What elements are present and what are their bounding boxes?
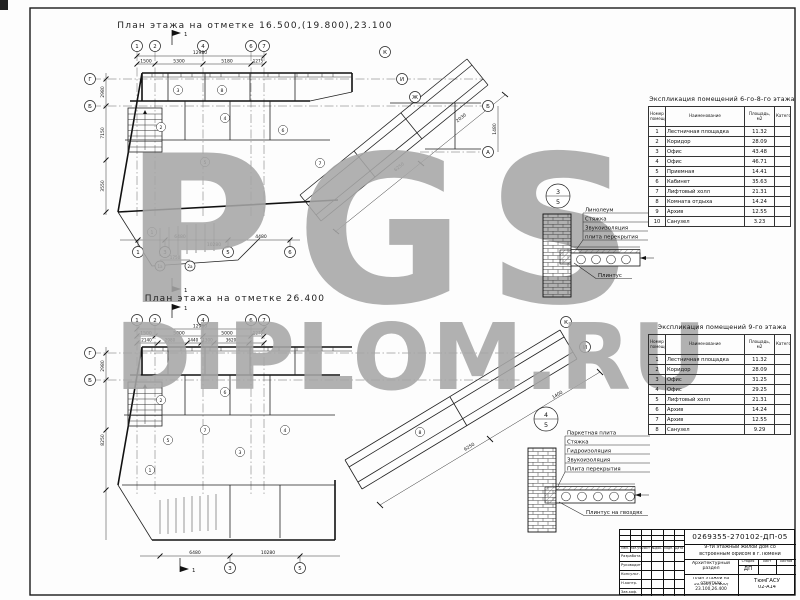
sign-header-cell: Лист (641, 547, 651, 551)
section-name: Архитектурный раздел (686, 561, 736, 572)
sign-header-cell: Кол.уч (630, 547, 641, 551)
project-name-line2: встроенным офисом в г.Тюмени (684, 552, 796, 558)
schedule-table: Номер помещения Наименование Площадь, м2… (648, 334, 791, 435)
layer-label: Гидроизоляция (567, 449, 611, 455)
sheet-label: Лист (758, 560, 776, 564)
table-row: 7Лифтовый холл21.31 (649, 187, 791, 197)
schedule-header-row: Номер помещения Наименование Площадь, м2… (649, 335, 791, 355)
col-header: Категория (775, 107, 791, 127)
table-row: 1Лестничная площадка11.32 (649, 355, 791, 365)
col-header: Наименование (666, 335, 745, 355)
col-header: Категория (775, 335, 791, 355)
table-row: 2Коридор28.09 (649, 137, 791, 147)
organization: ТюмГАСУ (738, 578, 796, 584)
sign-row-label: Руководит. (621, 563, 641, 567)
stage-label: Стадия (738, 560, 758, 564)
sign-row-label: Зав.каф. (621, 590, 641, 594)
layer-label: Звукоизоляция (567, 458, 610, 464)
detail-parquet: 4 5 Паркетная плита Стяжка Гидроизоляция… (528, 407, 650, 532)
project-name-line1: 9-ти этажный жилой дом со (684, 545, 796, 551)
sign-header-cell: Подп. (663, 547, 674, 551)
schedule-title: Экспликация помещений 9-го этажа (648, 324, 796, 331)
table-row: 8Комната отдыха14.24 (649, 197, 791, 207)
sign-row-label: Н.контр. (621, 581, 641, 585)
layer-label: Паркетная плита (567, 431, 616, 437)
table-row: 4Офис46.71 (649, 157, 791, 167)
detail-sheet: 5 (556, 198, 560, 206)
table-row: 3Офис43.48 (649, 147, 791, 157)
layer-label: плита перекрытия (585, 235, 638, 241)
detail-floor: 3 5 Линолеум Стяжка Звукоизоляция плита … (543, 184, 654, 297)
callout-label: Плинтус (598, 273, 622, 279)
sign-header-cell: Изм. (620, 547, 630, 551)
bottom-plan-title: План этажа на отметке 26.400 (115, 294, 355, 304)
callout-label: Плинтус на гвоздях (586, 510, 643, 516)
detail-sheet: 5 (544, 421, 548, 429)
layer-label: Плита перекрытия (567, 467, 621, 473)
schedule-title: Экспликация помещений 6-го-8-го этажа (648, 96, 796, 103)
sheets-label: Листов (776, 560, 796, 564)
top-plan-title: План этажа на отметке 16.500,(19.800),23… (115, 21, 395, 31)
table-row: 4Офис29.25 (649, 385, 791, 395)
table-row: 8Санузел9.29 (649, 425, 791, 435)
table-row: 10Санузел3.23 (649, 217, 791, 227)
table-row: 6Кабинет35.63 (649, 177, 791, 187)
table-row: 5Лифтовый холл21.31 (649, 395, 791, 405)
schedule-header-row: Номер помещения Наименование Площадь, м2… (649, 107, 791, 127)
table-row: 2Коридор28.09 (649, 365, 791, 375)
sign-row-label: Разработал (621, 554, 641, 558)
table-row: 5Приемная14.41 (649, 167, 791, 177)
col-header: Площадь, м2 (745, 335, 775, 355)
table-row: 3Офис31.25 (649, 375, 791, 385)
schedule-table: Номер помещения Наименование Площадь, м2… (648, 106, 791, 227)
sheet-title-line2: 16.500,(19.800) 23.100,26.400 (686, 583, 736, 593)
table-row: 9Архив12.55 (649, 207, 791, 217)
drawing-sheet: { "watermark": { "line1": "PGS", "line2"… (0, 0, 800, 600)
group-code: 02-А14 (738, 585, 796, 591)
room-schedule-ninth: Экспликация помещений 9-го этажа Номер п… (648, 324, 796, 435)
table-row: 1Лестничная площадка11.32 (649, 127, 791, 137)
table-row: 6Архив14.24 (649, 405, 791, 415)
col-header: Номер помещения (649, 335, 666, 355)
stage-value: ДП (738, 566, 758, 572)
table-row: 7Архив12.55 (649, 415, 791, 425)
layer-label: Стяжка (567, 440, 589, 446)
sign-row-label: Консульт. (621, 572, 641, 576)
layer-label: Линолеум (585, 208, 613, 214)
detail-number: 3 (556, 188, 560, 196)
detail-number: 4 (544, 411, 548, 419)
sign-header-cell: Дата (674, 547, 684, 551)
col-header: Наименование (666, 107, 745, 127)
sign-header-cell: №док. (651, 547, 663, 551)
layer-label: Звукоизоляция (585, 226, 628, 232)
title-block: 0269355-270102-ДП-05 9-ти этажный жилой … (619, 529, 795, 595)
col-header: Номер помещения (649, 107, 666, 127)
col-header: Площадь, м2 (745, 107, 775, 127)
layer-label: Стяжка (585, 217, 607, 223)
doc-number: 0269355-270102-ДП-05 (684, 533, 796, 541)
room-schedule-upper: Экспликация помещений 6-го-8-го этажа Но… (648, 96, 796, 227)
